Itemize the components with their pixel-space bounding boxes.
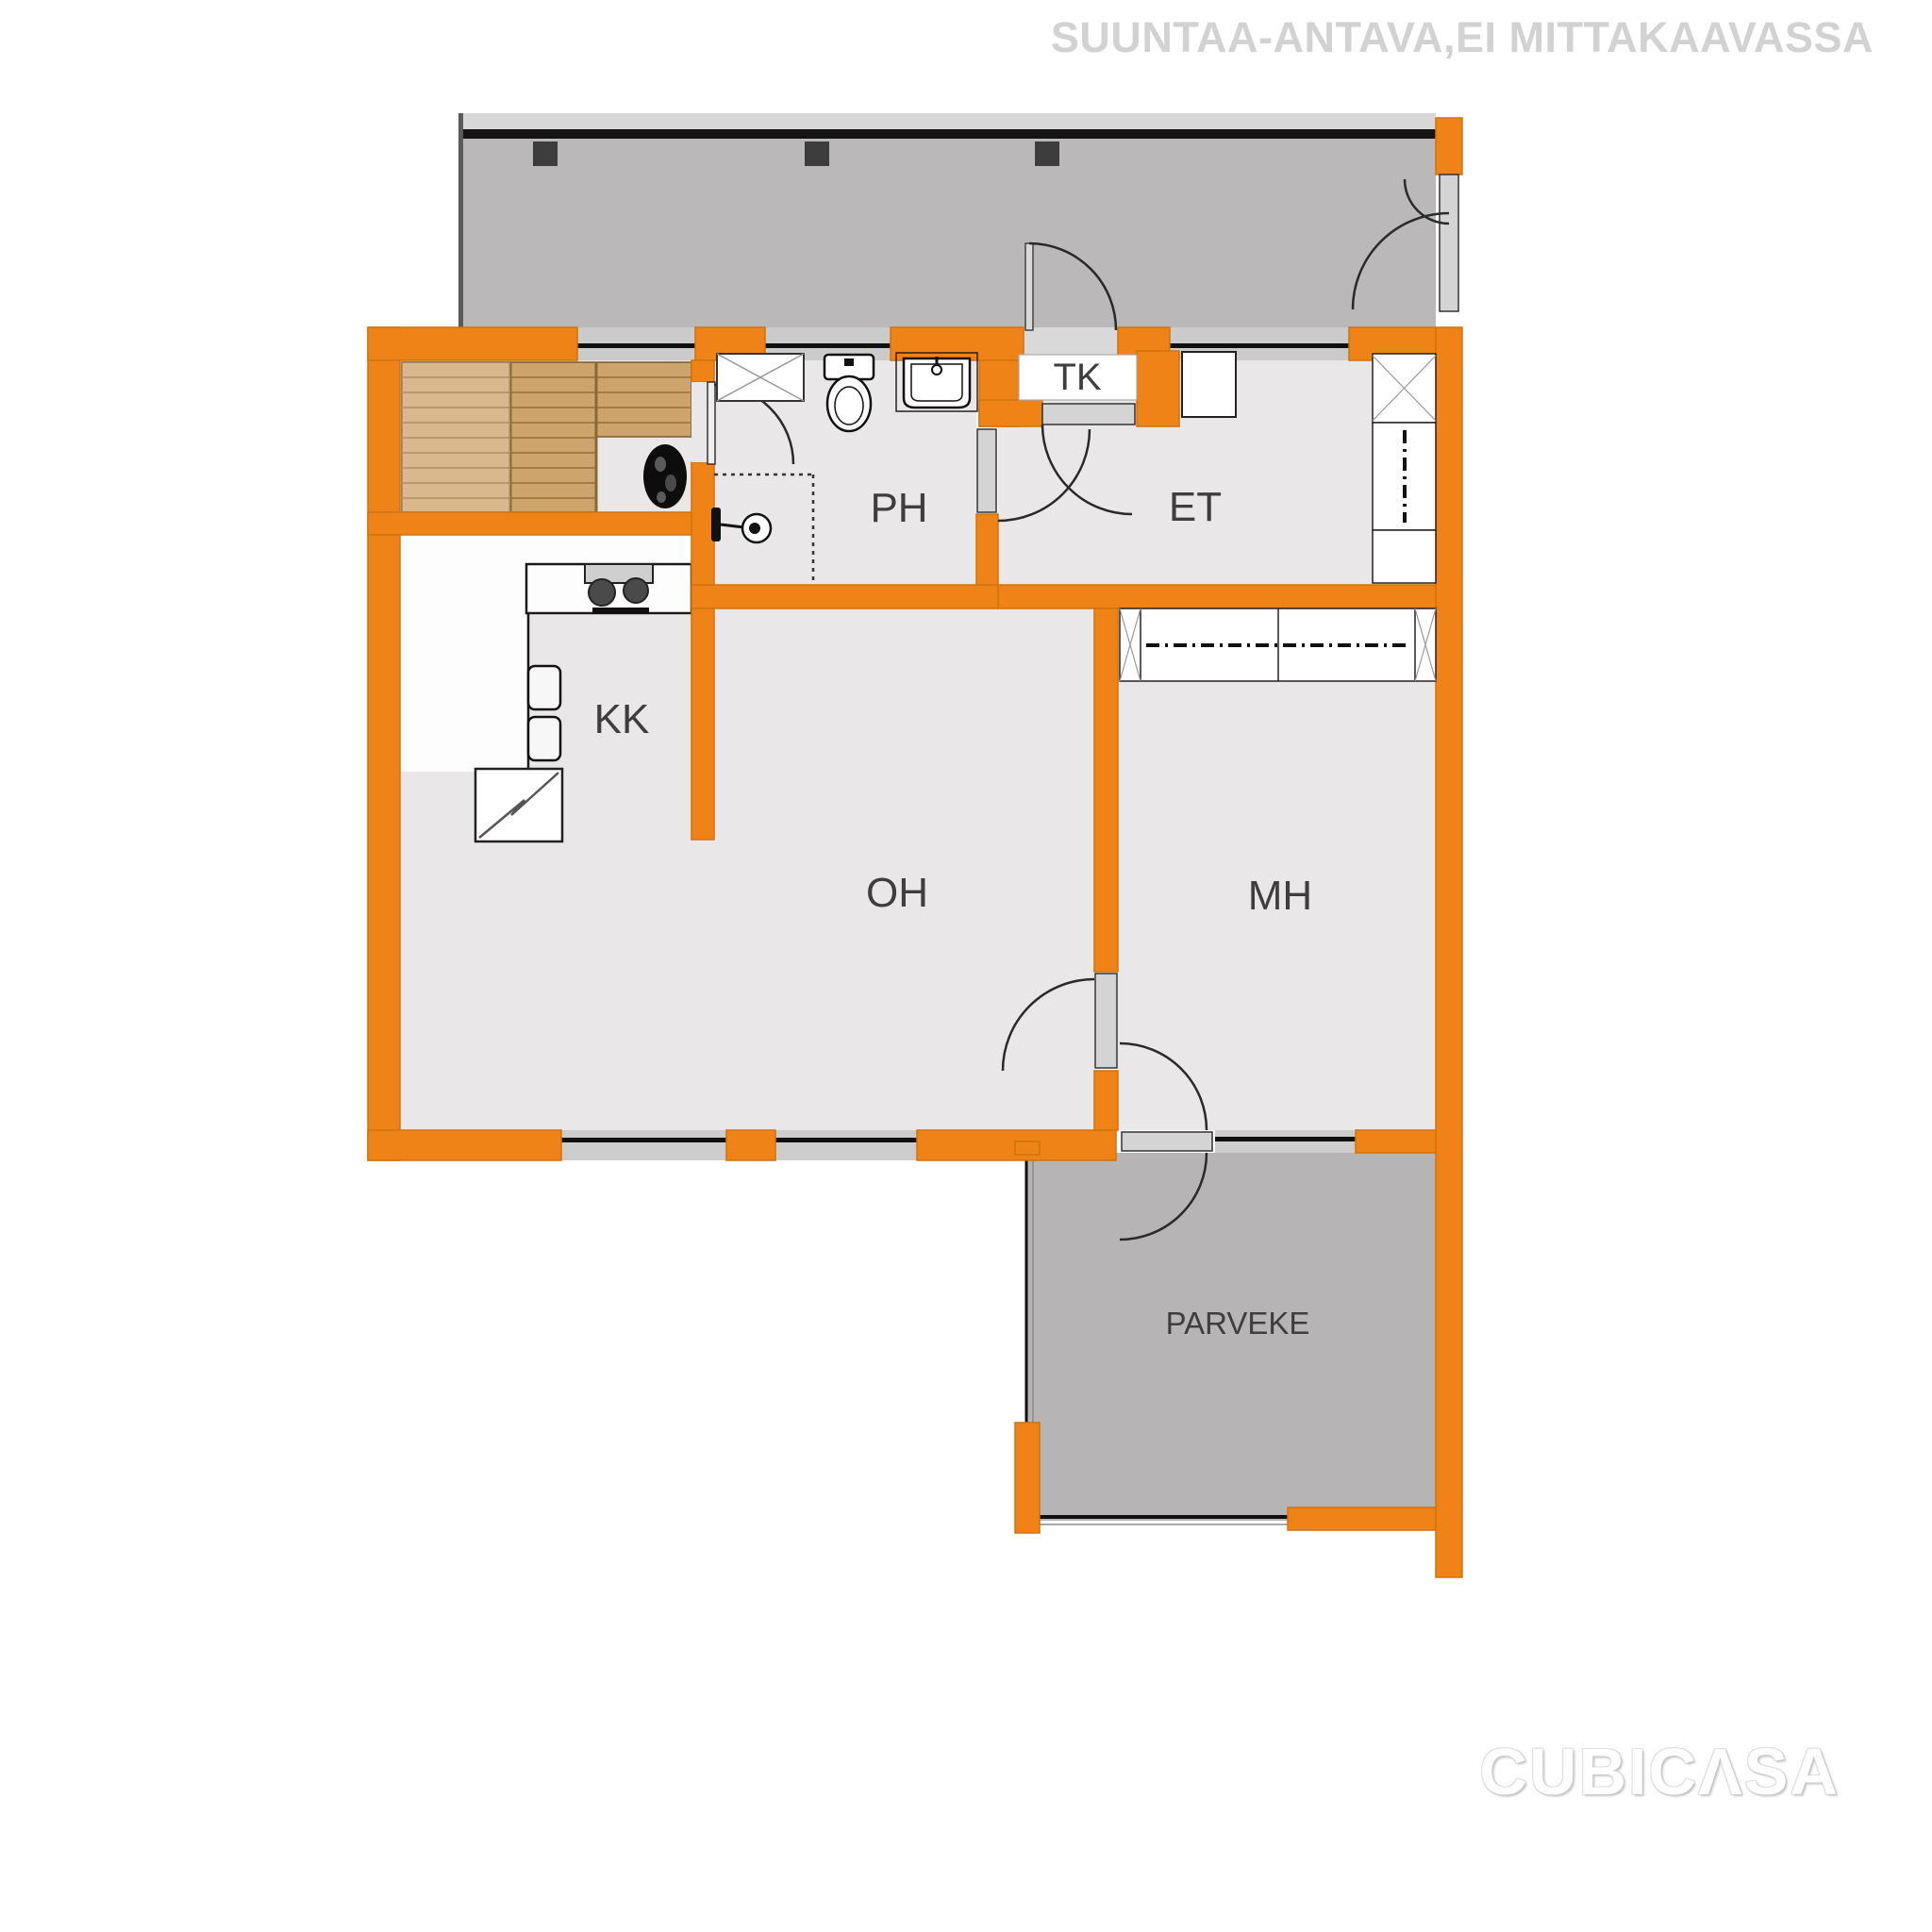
kitchen-living-wall: [691, 462, 714, 840]
washroom-door-leaf: [977, 429, 996, 512]
bedroom-door-leaf: [1095, 974, 1117, 1068]
vestibule-door-leaf: [1042, 404, 1135, 425]
room-label-mh: MH: [1248, 873, 1312, 919]
room-label-kk: KK: [594, 696, 650, 742]
window-icon: [1215, 1130, 1356, 1153]
corridor-end-wall: [1436, 118, 1462, 175]
corridor-left-wall-line: [458, 113, 463, 327]
bedroom-wardrobe: [1120, 608, 1436, 681]
room-label-ph: PH: [870, 485, 927, 531]
sauna-stove-icon: [643, 444, 687, 508]
toilet-icon: [824, 355, 874, 431]
exterior-wall-right: [1436, 327, 1462, 1577]
reservation-x-box-icon: [717, 354, 804, 401]
wardrobe-icon: [1120, 608, 1436, 681]
corridor-floor: [462, 139, 1436, 327]
sink-icon: [896, 353, 977, 411]
sauna-washroom-wall: [691, 360, 714, 382]
living-bedroom-wall: [1094, 608, 1118, 972]
balcony-door-leaf: [1122, 1132, 1212, 1151]
pillar-icon: [805, 142, 829, 166]
floor-plan-page: SUUNTAA-ANTAVA,EI MITTAKAAVASSA: [0, 0, 1932, 1932]
room-label-et: ET: [1169, 484, 1222, 530]
room-label-oh: OH: [866, 870, 928, 916]
vestibule-bottom-wall: [979, 400, 1042, 426]
bedroom-bottom-wall: [1356, 1130, 1436, 1153]
balcony-left-post: [1015, 1423, 1040, 1533]
corridor-top-wall-line: [462, 129, 1436, 139]
window-icon: [561, 1130, 726, 1160]
corridor-door-leaf: [1440, 175, 1458, 311]
vestibule-right-wall: [1137, 351, 1179, 426]
kitchen-counter: [400, 535, 528, 772]
bedroom-floor: [1118, 608, 1436, 1130]
washroom-right-wall: [976, 514, 998, 585]
hall-bedroom-wall: [998, 585, 1436, 608]
room-label-tk: TK: [1053, 357, 1101, 398]
hall-cabinet: [1182, 352, 1236, 417]
window-icon: [775, 1130, 917, 1160]
exterior-wall-top: [368, 327, 577, 360]
cubicasa-logo: CUBICΛSA: [1479, 1734, 1840, 1809]
corridor: [458, 113, 1436, 327]
exterior-wall-left: [368, 327, 400, 1160]
exterior-wall-bottom: [368, 1130, 561, 1160]
corridor-outer-strip: [462, 113, 1436, 129]
floor-plan-drawing: TK PH ET KK OH MH PARVEKE: [0, 0, 1932, 1932]
refrigerator-icon: [475, 769, 562, 841]
entrance-door-leaf: [1025, 243, 1033, 330]
sauna-bottom-wall: [368, 512, 714, 535]
room-label-parveke: PARVEKE: [1166, 1306, 1310, 1341]
balcony-bottom-wall: [1288, 1507, 1436, 1530]
pillar-icon: [533, 142, 558, 166]
washroom-bottom-wall: [691, 585, 998, 608]
sauna-door-leaf: [708, 382, 715, 464]
wardrobe-icon: [1373, 354, 1436, 583]
hall-wardrobe: [1373, 354, 1436, 583]
pillar-icon: [1035, 142, 1059, 166]
window-icon: [577, 327, 695, 360]
